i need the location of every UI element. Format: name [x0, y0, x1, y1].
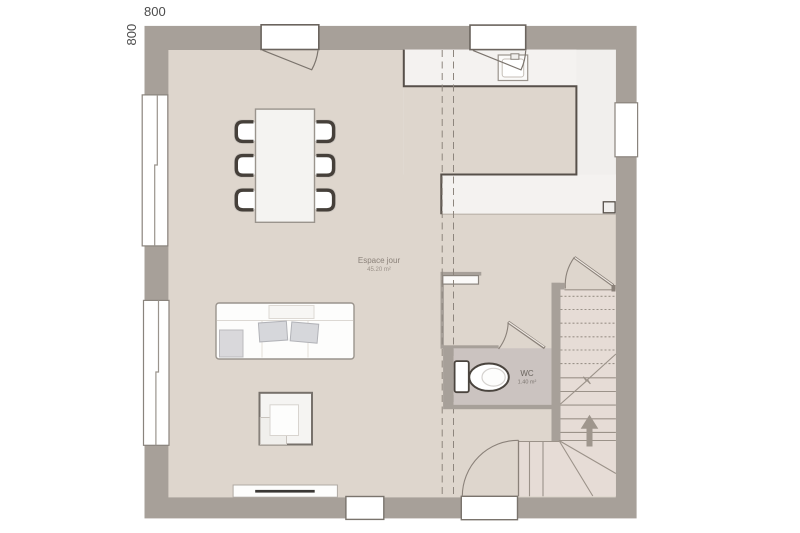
svg-text:45.20 m²: 45.20 m² [367, 267, 391, 273]
svg-text:WC: WC [520, 369, 534, 378]
svg-text:800: 800 [144, 4, 166, 19]
svg-text:800: 800 [124, 24, 139, 46]
svg-text:Espace jour: Espace jour [358, 256, 401, 265]
svg-text:1.40 m²: 1.40 m² [518, 380, 537, 386]
